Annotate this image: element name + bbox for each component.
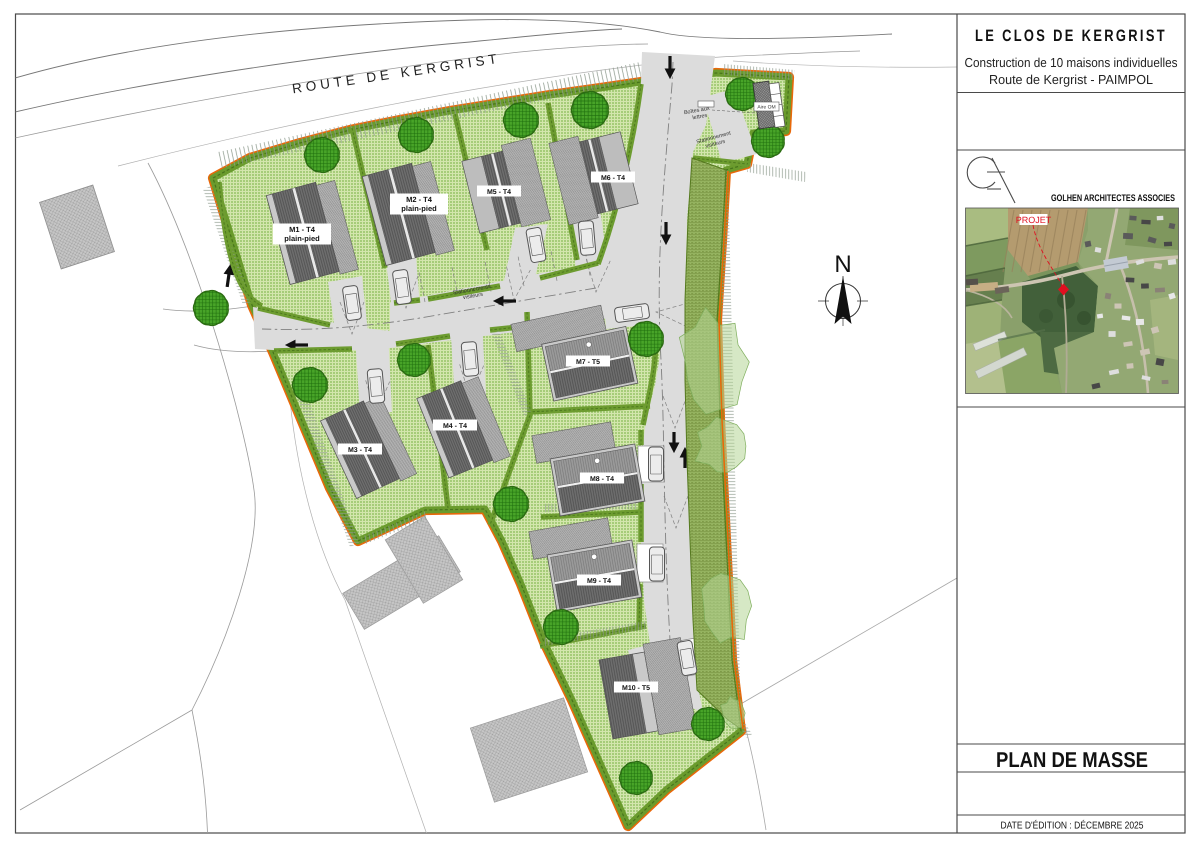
svg-text:M7 - T5: M7 - T5	[576, 359, 600, 366]
svg-text:M2 - T4: M2 - T4	[406, 195, 433, 204]
svg-text:N: N	[834, 251, 851, 278]
svg-text:M3 - T4: M3 - T4	[348, 447, 372, 454]
svg-text:M4 - T4: M4 - T4	[443, 423, 467, 430]
svg-text:M5 - T4: M5 - T4	[487, 189, 511, 196]
svg-text:GOLHEN ARCHITECTES ASSOCIES: GOLHEN ARCHITECTES ASSOCIES	[1051, 193, 1175, 204]
svg-text:PROJET: PROJET	[1016, 215, 1052, 225]
svg-text:M6 - T4: M6 - T4	[601, 175, 625, 182]
svg-text:M9 - T4: M9 - T4	[587, 578, 611, 585]
svg-text:PLAN DE MASSE: PLAN DE MASSE	[996, 748, 1148, 772]
svg-text:LE CLOS DE KERGRIST: LE CLOS DE KERGRIST	[975, 27, 1167, 45]
svg-text:M8 - T4: M8 - T4	[590, 476, 614, 483]
svg-text:Aire OM: Aire OM	[757, 105, 775, 111]
svg-text:Route de Kergrist - PAIMPOL: Route de Kergrist - PAIMPOL	[989, 72, 1153, 87]
svg-text:plain-pied: plain-pied	[284, 234, 320, 243]
svg-text:M1 - T4: M1 - T4	[289, 225, 316, 234]
svg-text:M10 - T5: M10 - T5	[622, 685, 650, 692]
svg-text:plain-pied: plain-pied	[401, 204, 437, 213]
svg-text:DATE D'ÉDITION : DÉCEMBRE 2025: DATE D'ÉDITION : DÉCEMBRE 2025	[1001, 820, 1144, 832]
svg-text:Construction de 10 maisons ind: Construction de 10 maisons individuelles	[965, 55, 1178, 70]
